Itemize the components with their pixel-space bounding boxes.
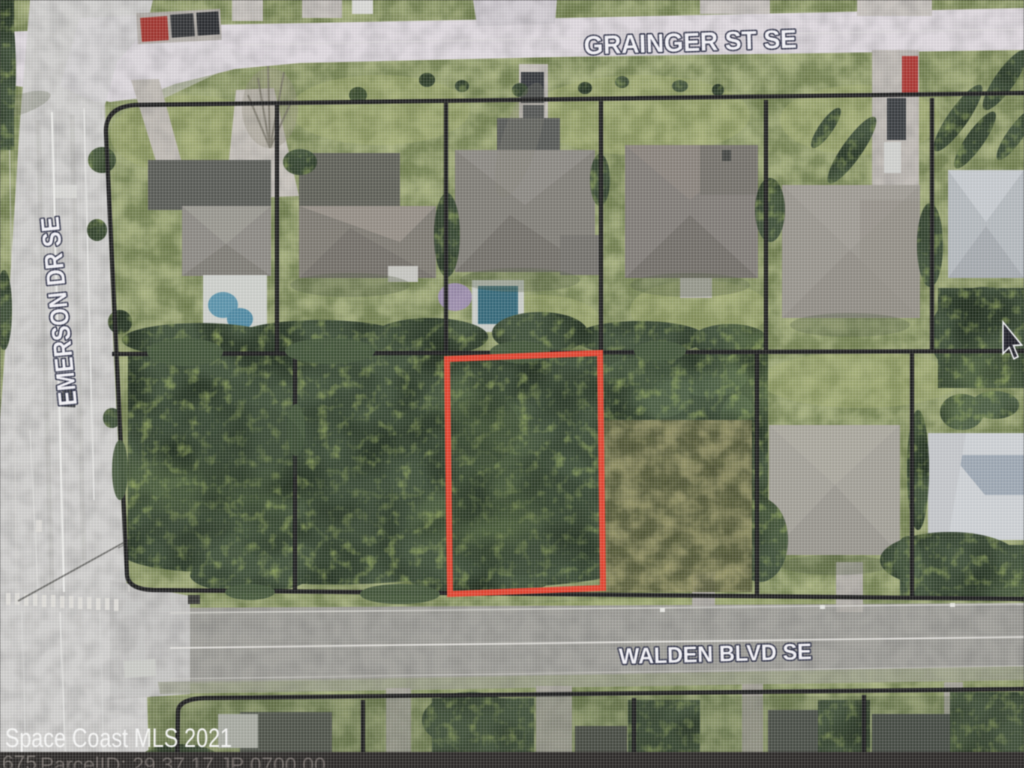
svg-text:ParcelID: 29 37 17 JP 0700 00: ParcelID: 29 37 17 JP 0700 00 xyxy=(40,754,326,768)
svg-text:675: 675 xyxy=(2,752,37,768)
svg-text:WALDEN BLVD SE: WALDEN BLVD SE xyxy=(618,639,812,669)
svg-text:Space Coast MLS 2021: Space Coast MLS 2021 xyxy=(5,723,232,753)
